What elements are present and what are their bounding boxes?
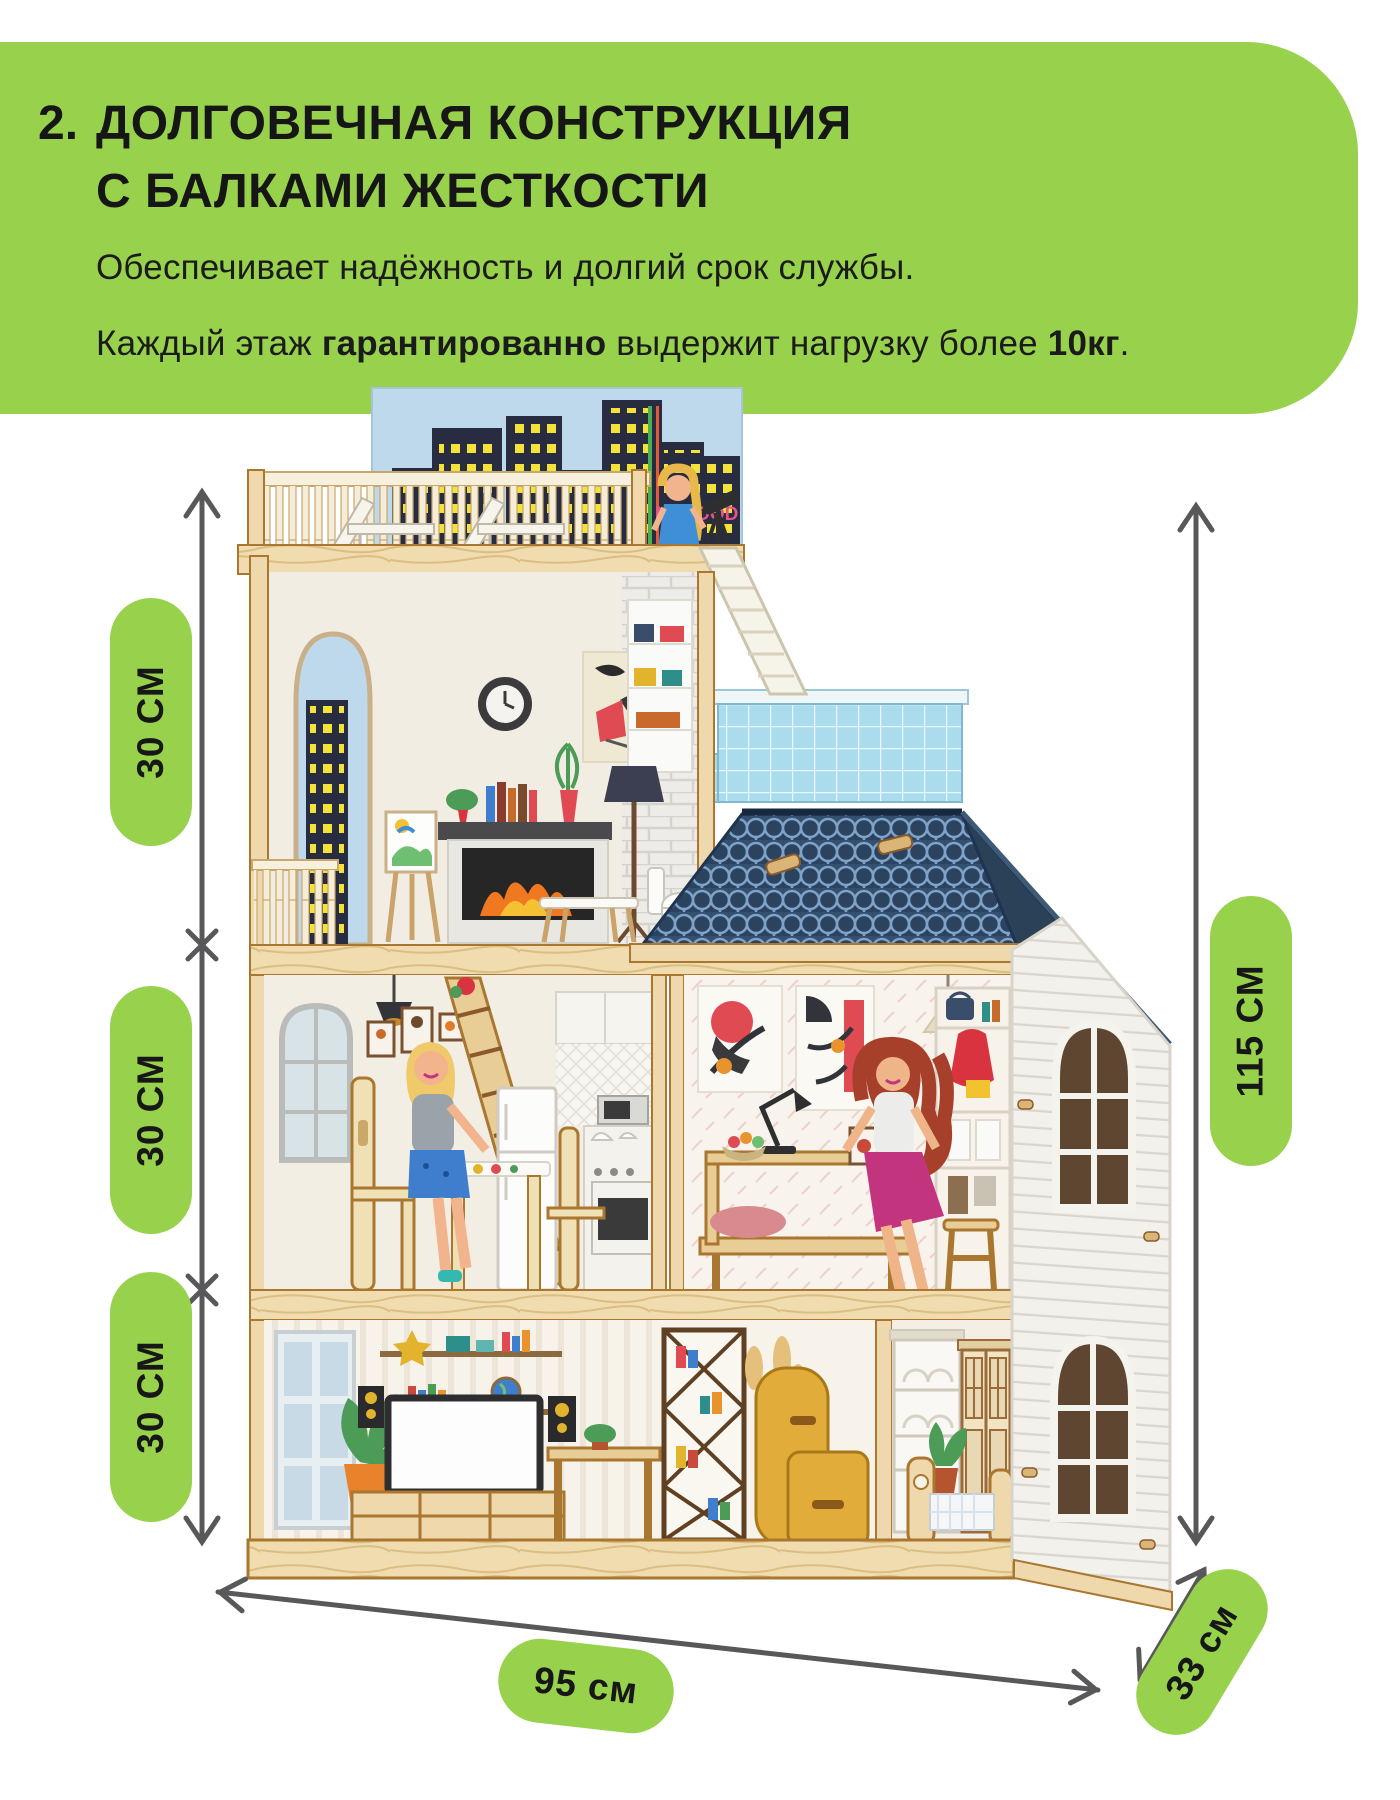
doll-on-terrace [654, 468, 704, 548]
bedroom-room [684, 975, 1012, 1298]
base-plinth [248, 1540, 1014, 1578]
balcony-railing [252, 860, 338, 945]
dimension-label-floor-2: 30 СМ [110, 986, 192, 1234]
living-room [264, 1320, 876, 1546]
small-frame-art [857, 1139, 871, 1153]
floor-beam-2 [250, 1290, 1014, 1320]
rooftop-terrace [238, 468, 744, 574]
bathroom-shelf [628, 600, 692, 772]
side-panel [1012, 918, 1172, 1610]
wall-post [652, 975, 666, 1290]
arched-window-side [1056, 1024, 1132, 1208]
dollhouse-illustration: M·WOOD [0, 0, 1400, 1800]
bedroom-small-room [890, 1320, 1014, 1544]
dimension-label-floor-3: 30 СМ [110, 1272, 192, 1522]
slide [700, 548, 806, 694]
product-infographic: 2. ДОЛГОВЕЧНАЯ КОНСТРУКЦИЯ С БАЛКАМИ ЖЕС… [0, 0, 1400, 1800]
kitchen-room [264, 975, 662, 1290]
wall-post [876, 1320, 892, 1540]
height-dimension-line-right [1180, 506, 1212, 1542]
dimension-label-total-height: 115 СМ [1210, 896, 1292, 1166]
terrace-floor [238, 545, 744, 574]
wall-post [670, 975, 684, 1290]
tv-setup [352, 1386, 576, 1540]
arched-window-side [1054, 1340, 1132, 1518]
wall-clock [478, 677, 532, 731]
poster-red-leaves [698, 986, 782, 1092]
diamond-ladder-shelf [664, 1330, 744, 1540]
fireplace [438, 822, 612, 943]
arch-window [282, 1006, 350, 1160]
pool [688, 690, 968, 802]
dimension-label-floor-1: 30 СМ [110, 598, 192, 846]
